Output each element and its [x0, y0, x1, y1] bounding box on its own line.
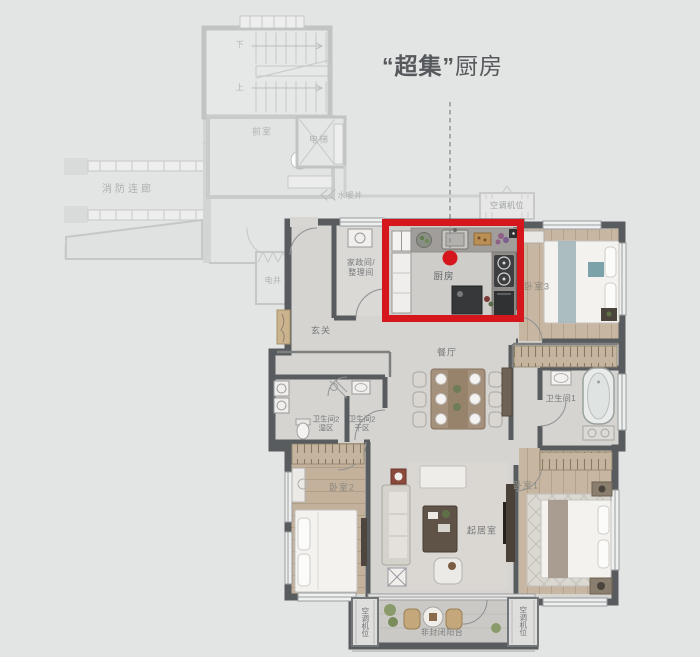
label-bath1: 卫生间1 — [546, 395, 576, 403]
label-ac-top: 空调机位 — [490, 202, 524, 210]
label-dining: 餐厅 — [437, 349, 457, 358]
label-ac-right: 空调机位 — [519, 606, 527, 636]
label-bedroom2: 卧室2 — [329, 484, 355, 493]
label-bath2-dry-2: 干区 — [355, 424, 370, 432]
label-living: 起居室 — [467, 527, 497, 536]
label-bath2-wet-2: 湿区 — [319, 424, 334, 432]
label-elevator: 电梯 — [309, 136, 329, 145]
label-vestibule: 前室 — [252, 128, 272, 137]
entry-console — [277, 310, 290, 344]
label-water-shaft: 水暖井 — [337, 192, 363, 200]
callout-title: “超集”厨房 — [382, 52, 503, 82]
label-stairs-down: 下 — [236, 41, 245, 49]
label-bath2-dry-1: 卫生间2 — [349, 415, 376, 423]
label-bedroom3: 卧室3 — [524, 283, 550, 292]
label-bath2-wet-1: 卫生间2 — [313, 415, 340, 423]
label-balcony: 非封闭阳台 — [421, 629, 464, 637]
label-stairs-up: 上 — [236, 84, 245, 92]
callout-title-rest: 厨房 — [455, 53, 503, 79]
label-kitchen: 厨房 — [433, 272, 454, 282]
label-fire-corridor: 消防连廊 — [102, 185, 154, 195]
kitchen-highlight-dot — [443, 251, 458, 266]
callout-title-quoted: “超集” — [382, 53, 455, 79]
label-housekeeping-2: 整理间 — [348, 269, 374, 277]
floorplan-graphic — [0, 0, 700, 657]
label-bedroom1: 卧室1 — [513, 482, 539, 491]
floorplan-stage: “超集”厨房 下 上 前室 电梯 消防连廊 水暖井 电井 空调机位 厨房 家政间… — [0, 0, 700, 657]
label-electric-shaft: 电井 — [265, 277, 282, 285]
label-entry: 玄关 — [311, 327, 331, 336]
label-housekeeping-1: 家政间/ — [347, 259, 375, 267]
label-ac-left: 空调机位 — [361, 607, 369, 637]
